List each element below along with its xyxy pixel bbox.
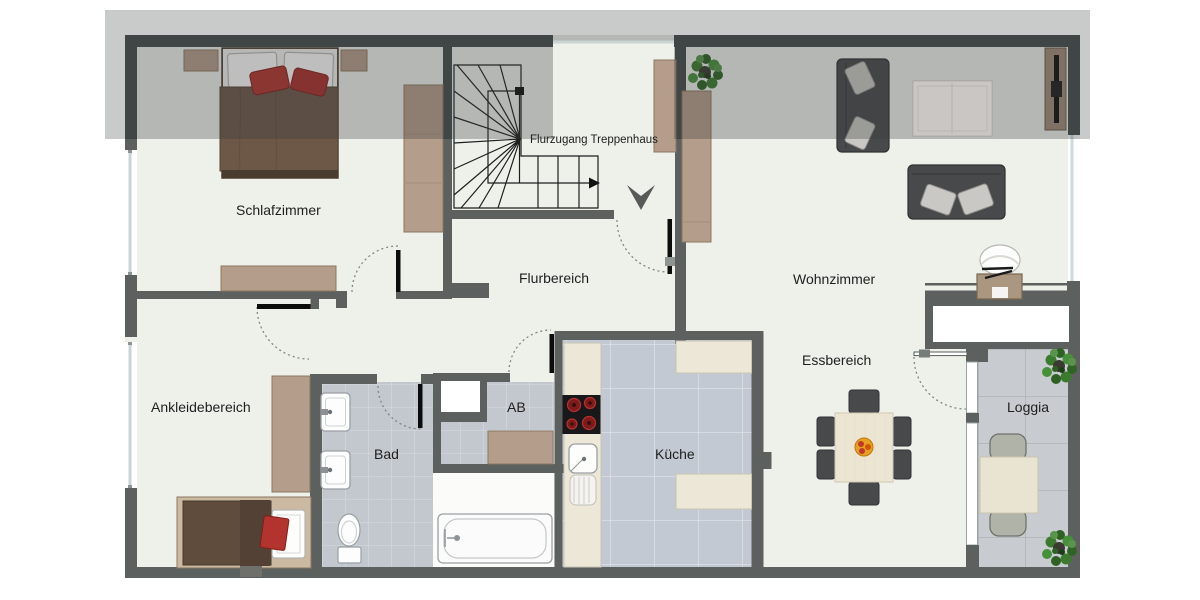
svg-text:Ankleidebereich: Ankleidebereich [151,399,251,415]
svg-text:Flurbereich: Flurbereich [519,270,589,286]
svg-text:Bad: Bad [374,446,399,462]
svg-text:Essbereich: Essbereich [802,352,871,368]
svg-text:AB: AB [507,399,526,415]
svg-text:Schlafzimmer: Schlafzimmer [236,202,321,218]
svg-text:Küche: Küche [655,446,695,462]
svg-text:Wohnzimmer: Wohnzimmer [793,271,876,287]
svg-text:Loggia: Loggia [1007,399,1049,415]
svg-text:Flurzugang Treppenhaus: Flurzugang Treppenhaus [530,134,658,146]
